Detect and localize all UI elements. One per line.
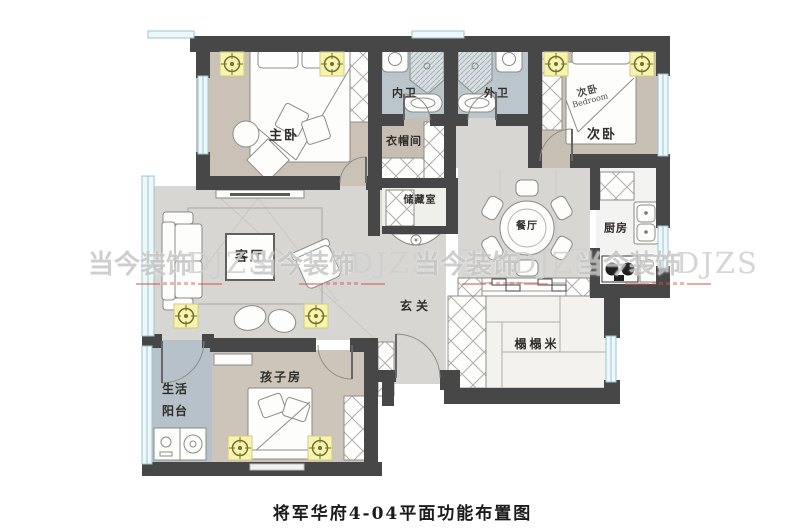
label-outer-bath: 外卫 [484,88,510,99]
label-living: 客厅 [235,251,265,264]
label-balcony-line1: 生活 [162,383,188,395]
label-inner-bath: 内卫 [392,88,418,99]
label-tatami: 榻榻米 [514,338,559,350]
floor-plan-drawing [0,0,805,532]
label-master-bedroom: 主卧 [269,130,299,143]
label-closet: 衣帽间 [386,136,422,147]
label-second-bedroom: 次卧 [587,129,617,142]
label-storage: 储藏室 [404,196,437,206]
label-entry: 玄关 [400,300,432,312]
label-kids-room: 孩子房 [260,371,302,383]
caption-title: 将军华府4-04平面功能布置图 [0,499,805,524]
label-dining: 餐厅 [516,222,538,232]
label-balcony-line2: 阳台 [162,405,188,417]
floor-plan-canvas: 主卧 衣帽间 内卫 外卫 次卧 厨房 餐厅 储藏室 客厅 玄关 榻榻米 孩子房 … [0,0,805,532]
label-kitchen: 厨房 [604,223,628,234]
furniture-balcony [154,428,206,460]
